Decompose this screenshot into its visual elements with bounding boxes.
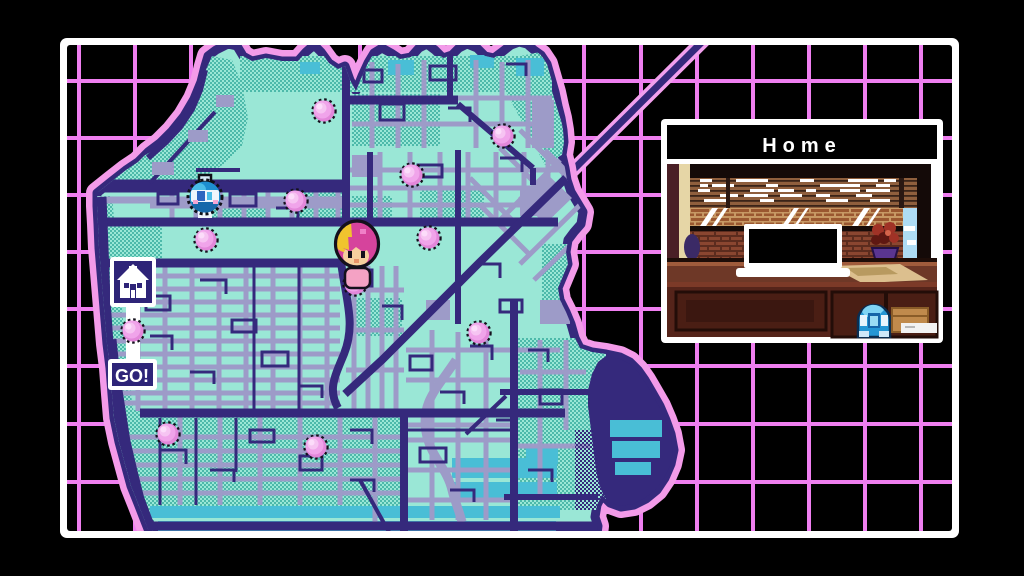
svg-text:Home: Home (762, 135, 842, 157)
svg-text:GO!: GO! (115, 366, 149, 386)
